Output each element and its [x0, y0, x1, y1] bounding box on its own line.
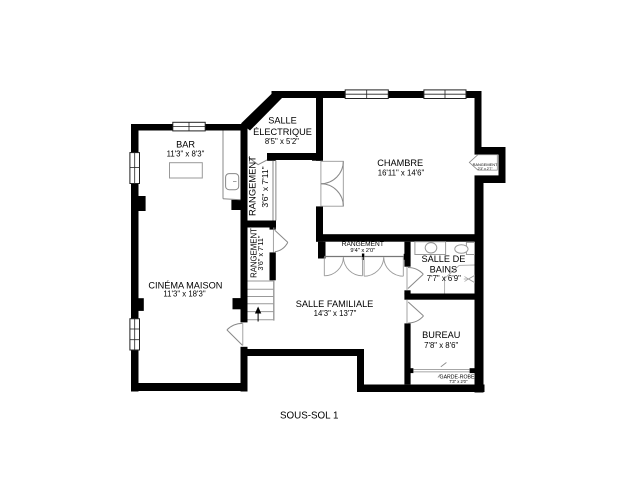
svg-text:CHAMBRE: CHAMBRE: [377, 158, 423, 168]
svg-text:14'3" x 13'7": 14'3" x 13'7": [314, 309, 357, 318]
svg-text:SALLE DE: SALLE DE: [421, 254, 465, 264]
svg-text:7'7" x 6'9": 7'7" x 6'9": [427, 274, 461, 283]
svg-text:SALLE FAMILIALE: SALLE FAMILIALE: [296, 299, 374, 309]
svg-text:SALLE: SALLE: [268, 116, 297, 126]
svg-text:8'5" x 5'2": 8'5" x 5'2": [265, 137, 299, 146]
svg-text:RANGEMENT: RANGEMENT: [342, 241, 384, 248]
svg-text:16'11" x 14'6": 16'11" x 14'6": [378, 168, 425, 177]
svg-text:3'6" x 7'11": 3'6" x 7'11": [256, 235, 265, 270]
svg-text:RANGEMENT: RANGEMENT: [247, 156, 258, 216]
svg-text:7'3" x 2'0": 7'3" x 2'0": [449, 379, 468, 384]
svg-text:11'3" x 8'3": 11'3" x 8'3": [167, 149, 205, 158]
svg-text:9'4" x 2'0": 9'4" x 2'0": [350, 248, 375, 254]
svg-text:11'3" x 18'3": 11'3" x 18'3": [163, 290, 205, 299]
svg-text:7'8" x 8'6": 7'8" x 8'6": [424, 341, 458, 350]
svg-text:3'6" x 7'11": 3'6" x 7'11": [260, 166, 270, 207]
svg-text:ÉLECTRIQUE: ÉLECTRIQUE: [253, 127, 312, 137]
svg-text:BAR: BAR: [176, 139, 195, 149]
svg-text:BAINS: BAINS: [430, 264, 458, 274]
svg-text:2'3" x 2'7": 2'3" x 2'7": [478, 167, 494, 171]
svg-text:BUREAU: BUREAU: [422, 330, 460, 340]
svg-text:SOUS-SOL 1: SOUS-SOL 1: [280, 411, 338, 422]
